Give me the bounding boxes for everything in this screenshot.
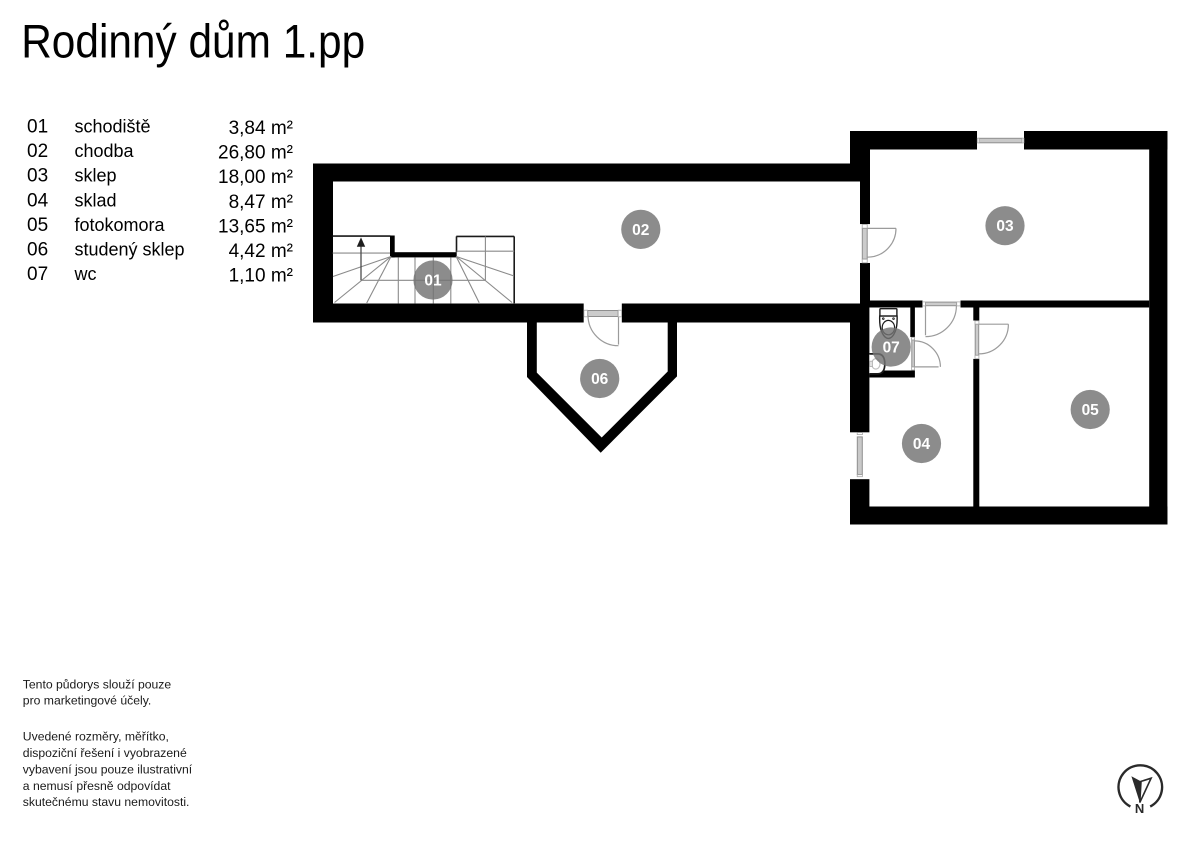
svg-text:wc: wc — [74, 264, 97, 284]
svg-text:Tento půdorys slouží pouze: Tento půdorys slouží pouze — [23, 677, 172, 691]
svg-text:3,84 m²: 3,84 m² — [229, 118, 293, 139]
svg-text:06: 06 — [27, 240, 48, 261]
svg-text:13,65 m²: 13,65 m² — [218, 216, 293, 237]
svg-text:Uvedené rozměry, měřítko,: Uvedené rozměry, měřítko, — [23, 730, 169, 744]
svg-text:1,10 m²: 1,10 m² — [229, 266, 293, 287]
svg-text:4,42 m²: 4,42 m² — [229, 241, 293, 262]
svg-text:03: 03 — [27, 166, 48, 187]
svg-text:07: 07 — [27, 264, 48, 285]
svg-text:a nemusí přesně odpovídat: a nemusí přesně odpovídat — [23, 779, 171, 793]
svg-text:04: 04 — [913, 436, 931, 453]
svg-text:8,47 m²: 8,47 m² — [229, 192, 293, 213]
svg-text:sklep: sklep — [75, 166, 117, 186]
svg-text:03: 03 — [996, 218, 1014, 235]
svg-text:skutečnému stavu nemovitosti.: skutečnému stavu nemovitosti. — [23, 795, 190, 809]
svg-text:Rodinný dům 1.pp: Rodinný dům 1.pp — [21, 16, 365, 69]
svg-text:vybavení jsou pouze ilustrativ: vybavení jsou pouze ilustrativní — [23, 762, 193, 776]
svg-text:N: N — [1135, 801, 1144, 816]
svg-text:dispoziční řešení i vyobrazené: dispoziční řešení i vyobrazené — [23, 746, 187, 760]
svg-text:studený sklep: studený sklep — [75, 240, 185, 260]
svg-text:02: 02 — [632, 222, 649, 239]
svg-text:05: 05 — [27, 215, 48, 236]
svg-text:pro marketingové účely.: pro marketingové účely. — [23, 694, 151, 708]
svg-text:chodba: chodba — [75, 141, 135, 161]
svg-text:01: 01 — [424, 273, 442, 290]
svg-text:18,00 m²: 18,00 m² — [218, 167, 293, 188]
svg-text:schodiště: schodiště — [75, 117, 151, 137]
svg-text:06: 06 — [591, 371, 609, 388]
svg-text:04: 04 — [27, 190, 49, 211]
svg-text:sklad: sklad — [75, 190, 117, 210]
svg-text:01: 01 — [27, 117, 48, 138]
svg-text:05: 05 — [1082, 402, 1100, 419]
svg-text:26,80 m²: 26,80 m² — [218, 143, 293, 164]
svg-text:fotokomora: fotokomora — [75, 215, 166, 235]
svg-text:07: 07 — [883, 340, 900, 357]
svg-text:02: 02 — [27, 141, 48, 162]
